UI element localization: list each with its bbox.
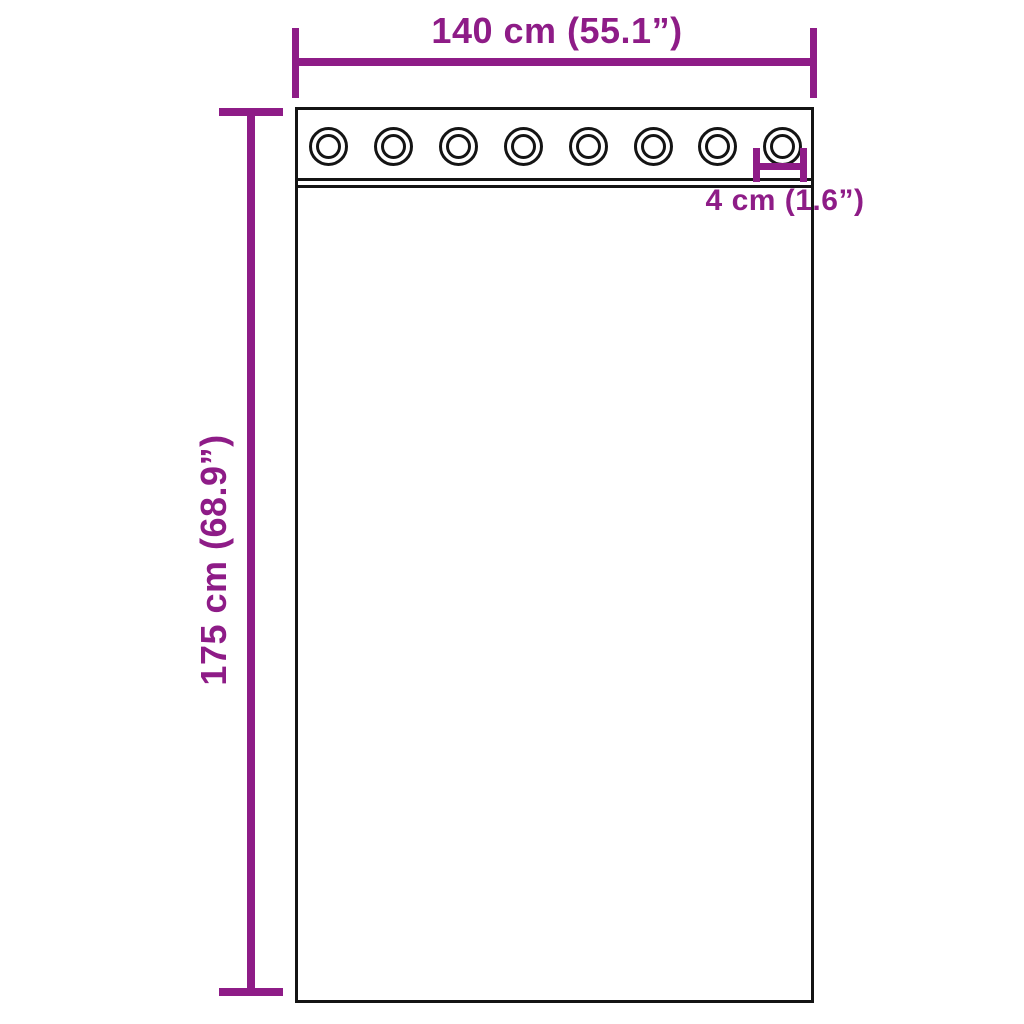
grommet-inner-ring [705, 134, 730, 159]
grommet-inner-ring [316, 134, 341, 159]
curtain-panel-outline [295, 107, 814, 1003]
height-dimension-line [247, 112, 255, 992]
grommet-inner-ring [381, 134, 406, 159]
grommet-inner-ring [446, 134, 471, 159]
grommet-inner-ring [576, 134, 601, 159]
height-dimension-end-cap-bottom [219, 988, 283, 996]
grommet-eyelet [634, 127, 673, 166]
grommet-inner-ring [511, 134, 536, 159]
width-dimension-label: 140 cm (55.1”) [431, 10, 682, 52]
curtain-dimension-diagram: 140 cm (55.1”) 175 cm (68.9”) 4 cm (1.6”… [0, 0, 1024, 1024]
width-dimension-end-cap-right [810, 28, 817, 98]
grommet-eyelet [374, 127, 413, 166]
header-band-seam-line-outer [296, 178, 813, 181]
grommet-eyelet [439, 127, 478, 166]
grommet-diameter-label: 4 cm (1.6”) [706, 184, 865, 218]
grommet-diameter-bracket-bar [753, 163, 807, 170]
width-dimension-line [296, 58, 813, 66]
width-dimension-end-cap-left [292, 28, 299, 98]
grommet-eyelet [309, 127, 348, 166]
grommet-eyelet [504, 127, 543, 166]
grommet-eyelet [569, 127, 608, 166]
page: { "diagram": { "kind": "product-dimensio… [0, 0, 1024, 1024]
height-dimension-end-cap-top [219, 108, 283, 116]
grommet-inner-ring [641, 134, 666, 159]
grommet-inner-ring [770, 134, 795, 159]
height-dimension-label: 175 cm (68.9”) [193, 434, 235, 685]
